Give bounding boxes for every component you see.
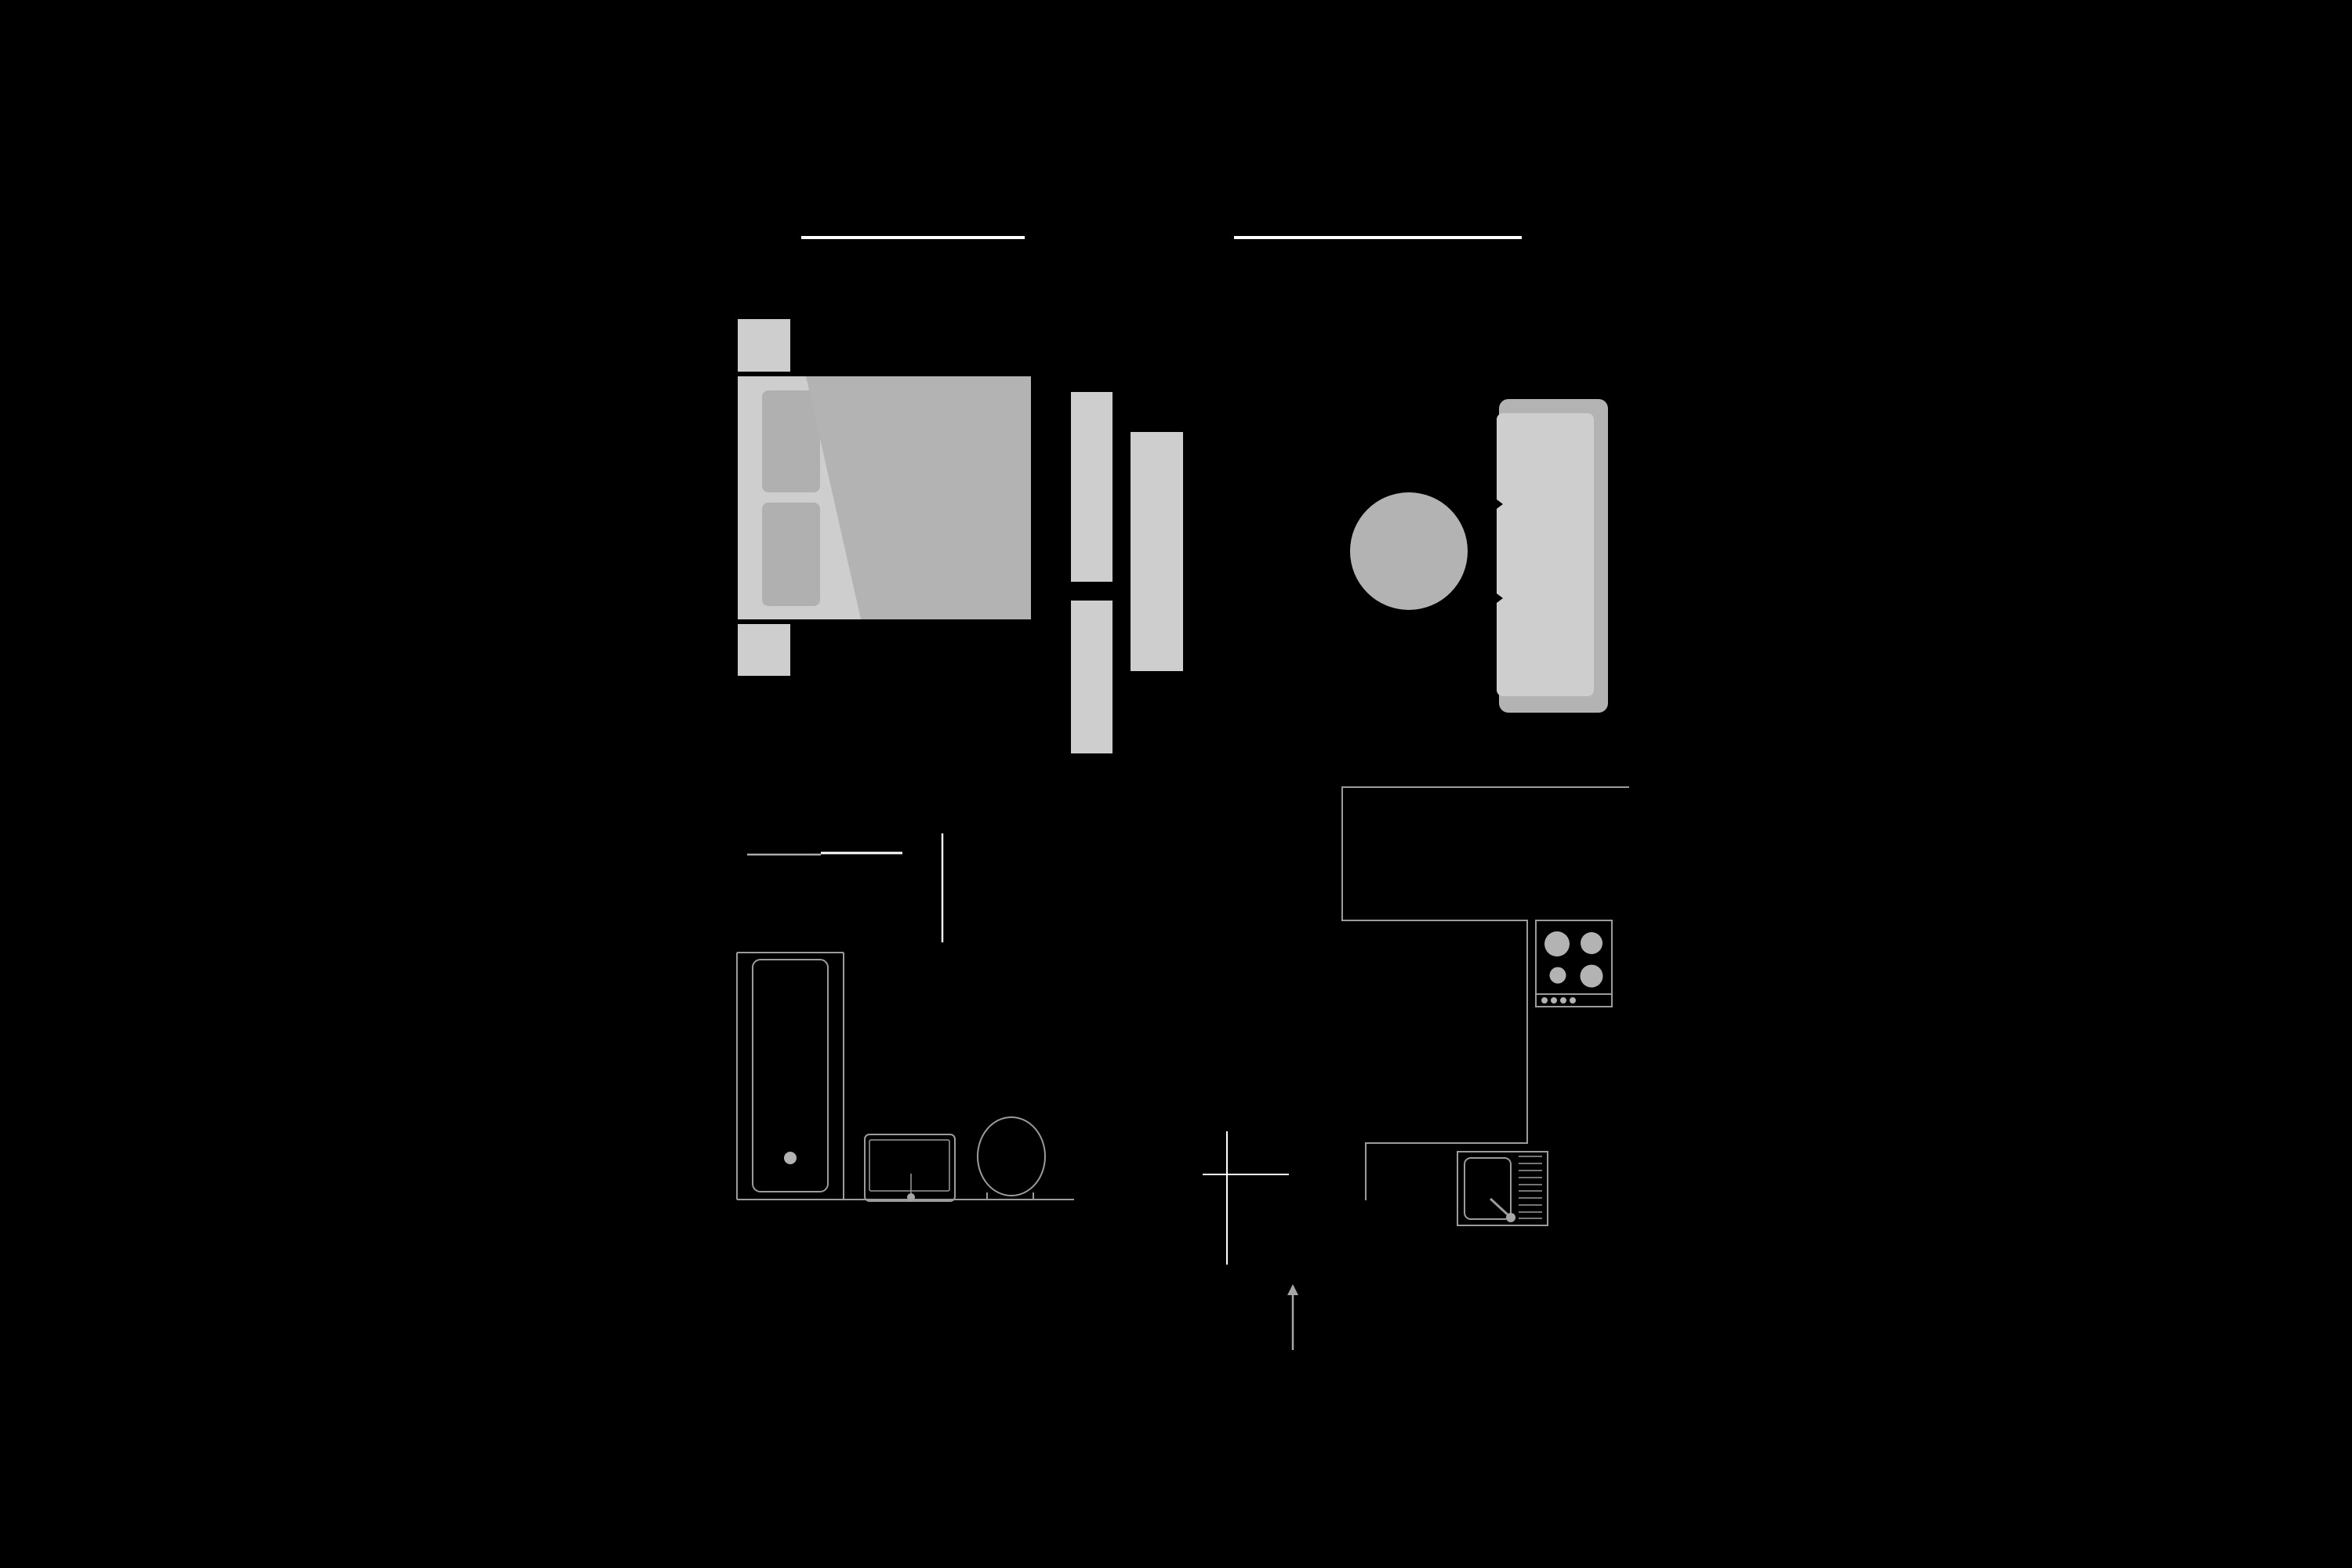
washbasin-faucet-base	[907, 1193, 915, 1201]
cooktop	[1536, 920, 1612, 1007]
wardrobe-panel-upper	[1071, 392, 1112, 582]
cooktop-knob-1	[1541, 997, 1548, 1004]
sofa-seat-cushions	[1497, 413, 1594, 696]
washbasin	[865, 1134, 955, 1201]
nightstand-top	[738, 319, 790, 372]
bathtub-drain	[784, 1152, 797, 1164]
bedroom-window-line	[801, 236, 1025, 239]
cross-marker	[1203, 1131, 1289, 1265]
sink-faucet-base	[1506, 1213, 1515, 1222]
sink-unit-outline	[1457, 1152, 1548, 1225]
burner-small-bottom-left	[1550, 967, 1566, 984]
toilet-bowl	[978, 1117, 1045, 1196]
bed-pillow-bottom	[762, 503, 820, 606]
living-room-window-line	[1234, 236, 1522, 239]
bed-pillow-top	[762, 390, 820, 492]
sink-drainboard-lines	[1519, 1156, 1542, 1218]
cooktop-knob-3	[1560, 997, 1566, 1004]
sink-faucet-arm	[1490, 1199, 1510, 1217]
kitchen-sink-unit	[1457, 1152, 1548, 1225]
burner-large-top-left	[1544, 931, 1570, 956]
toilet	[978, 1117, 1045, 1200]
round-table	[1350, 492, 1468, 610]
washbasin-bowl	[869, 1140, 949, 1191]
dresser-panel	[1131, 432, 1183, 671]
wardrobe-panel-lower	[1071, 601, 1112, 753]
entrance-arrow-head	[1287, 1284, 1298, 1295]
burner-top-right	[1581, 932, 1602, 954]
floor-plan-drawing	[0, 0, 2352, 1568]
cooktop-knob-2	[1551, 997, 1557, 1004]
burner-bottom-right	[1581, 965, 1603, 988]
cooktop-knob-4	[1570, 997, 1576, 1004]
nightstand-bottom	[738, 624, 790, 676]
floor-plan-canvas	[0, 0, 2352, 1568]
entrance-arrow	[1287, 1284, 1298, 1350]
